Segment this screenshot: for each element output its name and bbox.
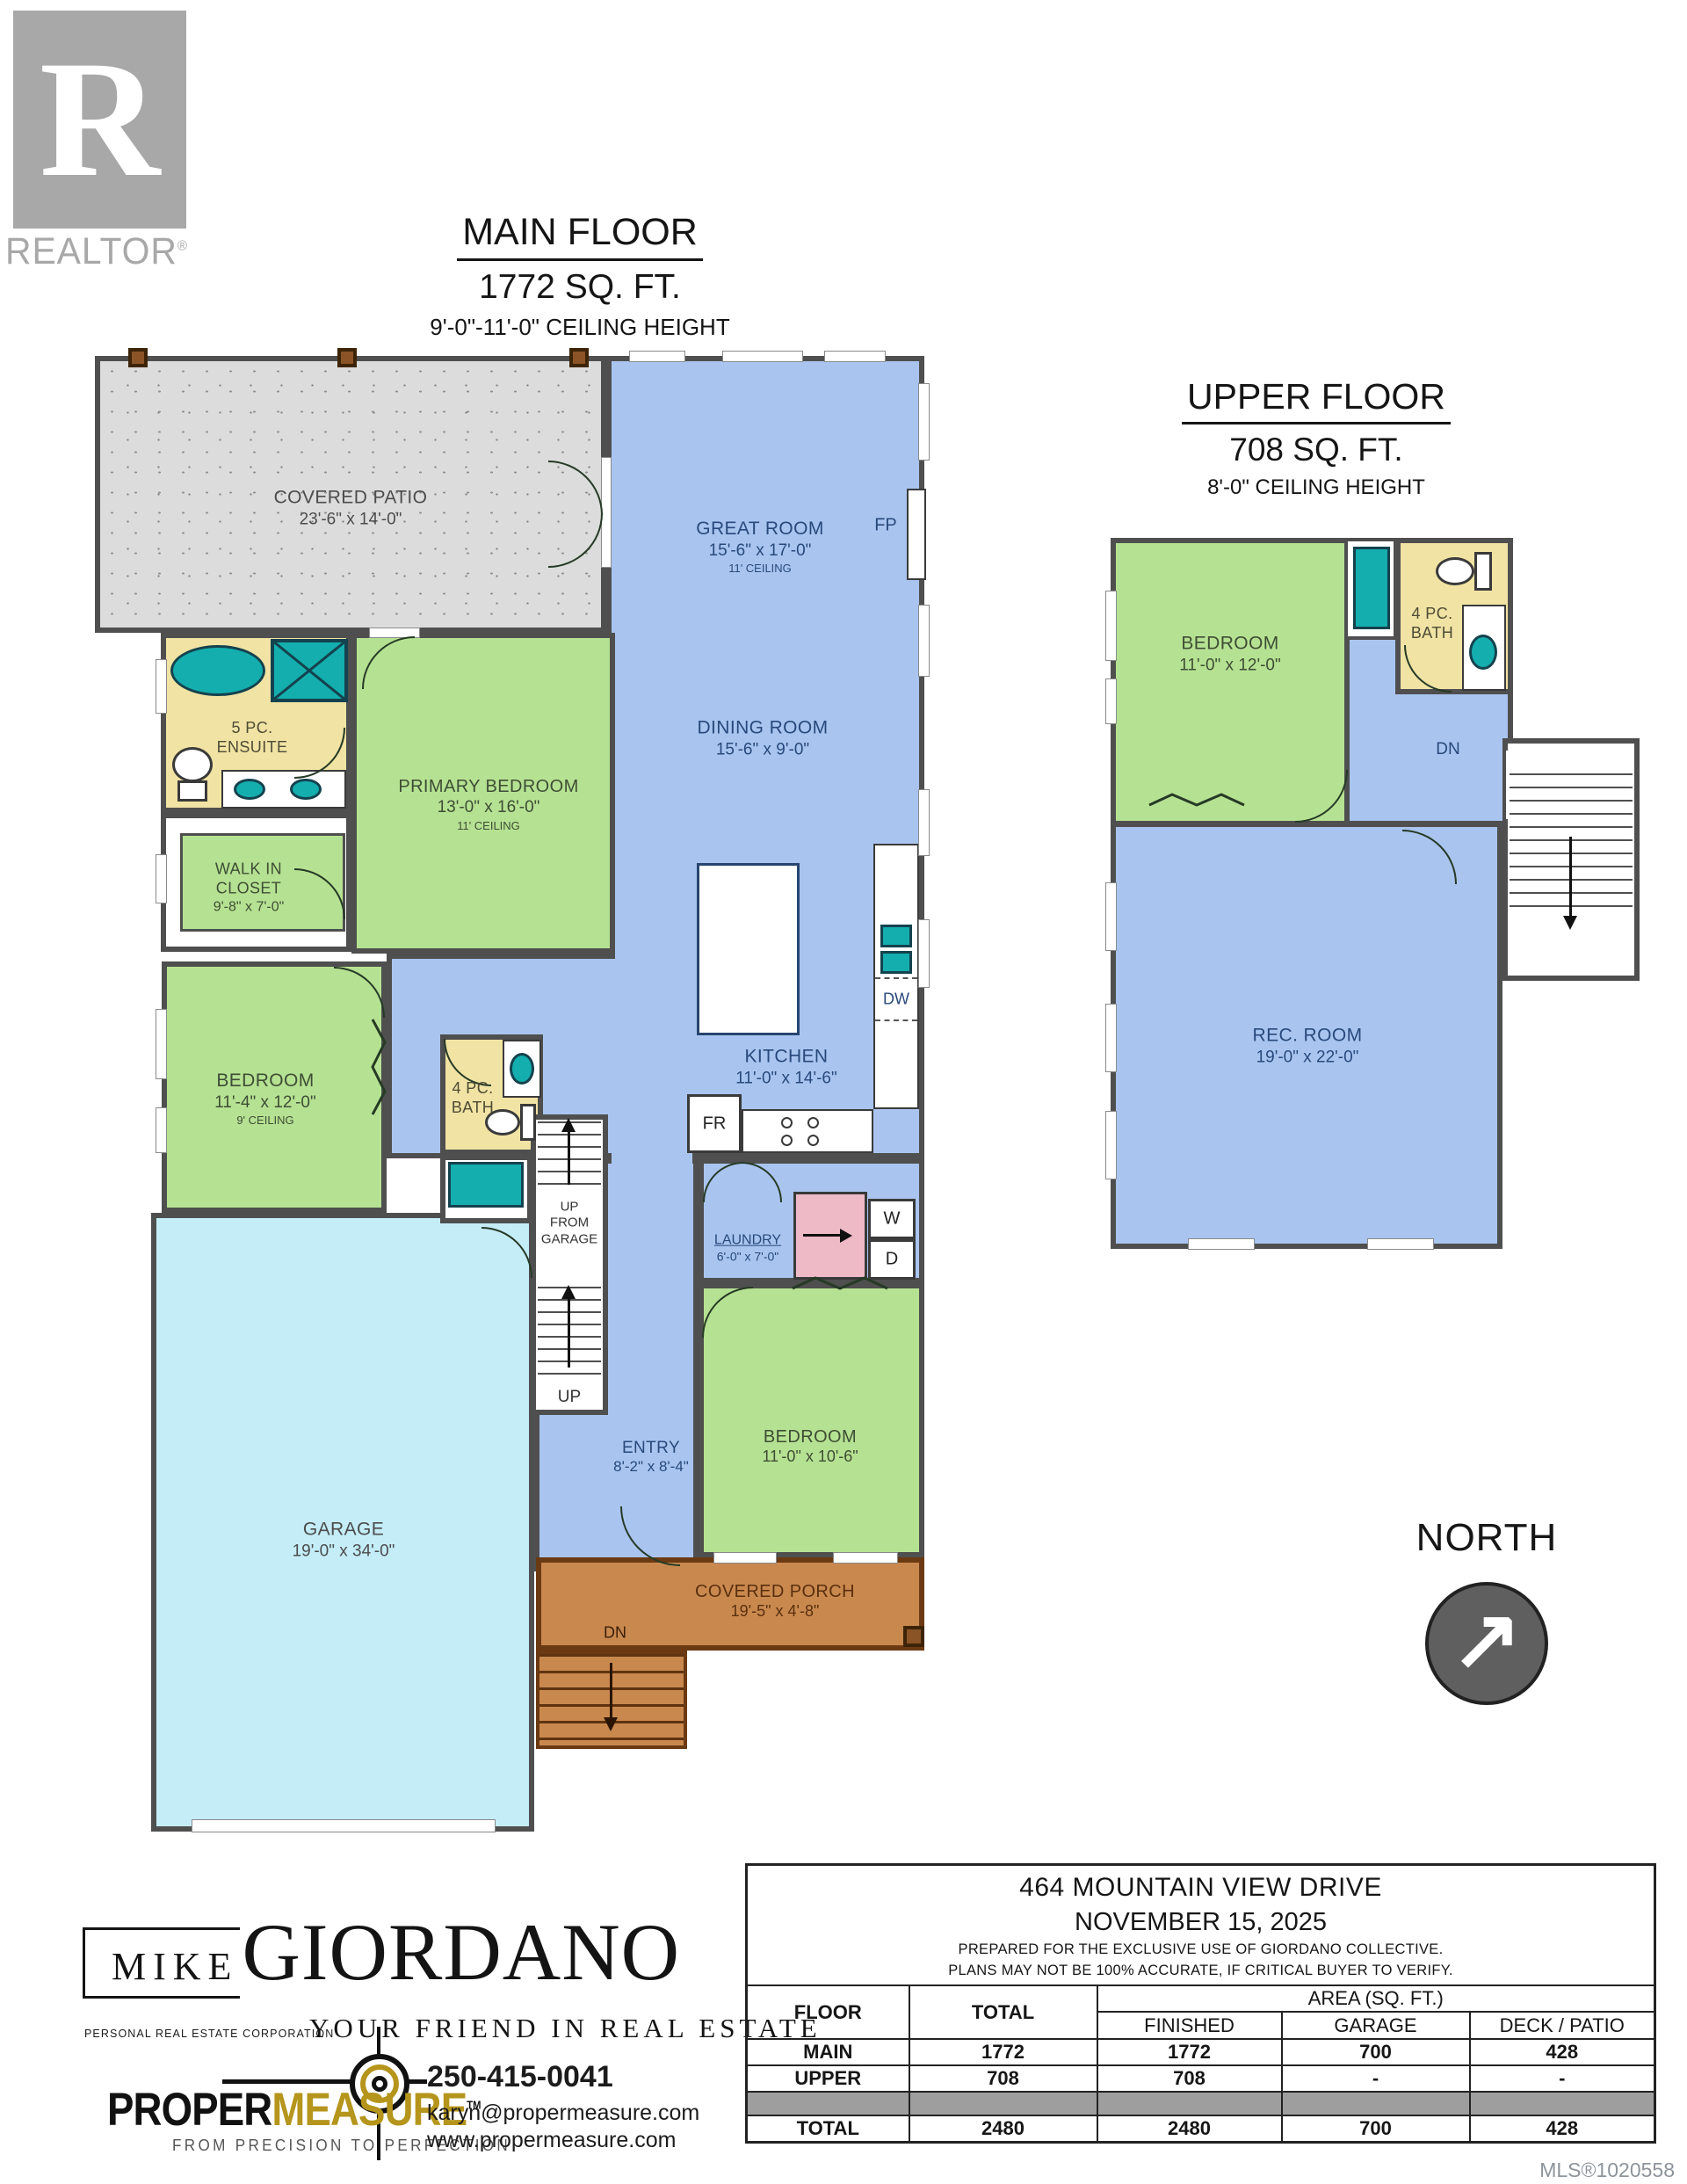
main-floor-area: 1772 SQ. FT.	[347, 268, 813, 307]
label-walk-in-closet: WALK IN CLOSET 9'-8" x 7'-0"	[214, 860, 285, 915]
window	[824, 351, 886, 362]
dw-divider	[875, 1019, 917, 1021]
stair-arrow	[568, 1294, 570, 1368]
window	[918, 919, 930, 988]
plan-date: NOVEMBER 15, 2025	[751, 1908, 1650, 1937]
laundry-arrow	[803, 1234, 842, 1237]
mike-frame: MIKE	[83, 1927, 240, 1999]
stove-burner	[807, 1135, 819, 1146]
upper-shower	[1353, 547, 1390, 629]
label-covered-patio: COVERED PATIO 23'-6" x 14'-0"	[274, 487, 428, 530]
patio-post	[569, 348, 589, 367]
mls-number: MLS®1020558	[1485, 2159, 1675, 2182]
north-compass-icon: ↗	[1425, 1582, 1548, 1705]
laundry-arrow-head	[840, 1229, 852, 1243]
ensuite-toilet	[172, 747, 213, 782]
upper-toilet	[1436, 557, 1474, 585]
propermeasure-phone: 250-415-0041	[427, 2060, 613, 2094]
ensuite-toilet-tank	[177, 780, 207, 802]
window	[1105, 1111, 1117, 1179]
table-row-upper: UPPER 708 708 - -	[747, 2065, 1655, 2092]
north-label: NORTH	[1416, 1516, 1558, 1560]
col-header-deck: DECK / PATIO	[1470, 2012, 1655, 2039]
registered-mark: ®	[177, 239, 188, 254]
stair-arrow-head	[561, 1118, 576, 1132]
table-note-2: PLANS MAY NOT BE 100% ACCURATE, IF CRITI…	[751, 1963, 1650, 1979]
window	[722, 351, 803, 362]
upper-floor-title: UPPER FLOOR	[1182, 376, 1451, 424]
stair-arrow-head	[561, 1285, 576, 1299]
bath-toilet-tank	[520, 1104, 536, 1141]
window	[156, 659, 167, 714]
ensuite-sink	[234, 779, 265, 800]
propermeasure-wordmark: PROPERMEASURETM	[107, 2083, 481, 2137]
main-floor-title: MAIN FLOOR	[457, 211, 703, 261]
stair-arrow	[568, 1127, 570, 1185]
giordano-subtitle: PERSONAL REAL ESTATE CORPORATION	[84, 2028, 334, 2040]
window	[156, 1107, 167, 1153]
window	[1105, 1004, 1117, 1072]
north-arrow-icon: ↗	[1452, 1598, 1522, 1682]
table-spacer-row	[747, 2092, 1655, 2115]
table-row-total: TOTAL 2480 2480 700 428	[747, 2115, 1655, 2143]
window	[918, 789, 930, 856]
propermeasure-email: karyn@propermeasure.com	[427, 2101, 699, 2126]
label-bedroom3: BEDROOM 11'-0" x 10'-6"	[762, 1426, 858, 1467]
window	[1105, 591, 1117, 661]
giordano-logo: MIKEGIORDANO	[83, 1918, 680, 1999]
realtor-wordmark: REALTOR®	[5, 230, 187, 273]
realtor-logo-icon: R	[13, 11, 186, 229]
label-covered-porch: COVERED PORCH 19'-5" x 4'-8"	[695, 1581, 855, 1622]
table-header-block: 464 MOUNTAIN VIEW DRIVE NOVEMBER 15, 202…	[747, 1865, 1655, 1986]
kitchen-counter	[873, 844, 919, 1109]
patio-post	[128, 348, 148, 367]
kitchen-counter-stove	[742, 1109, 873, 1153]
stove-burner	[781, 1135, 793, 1146]
ensuite-shower	[271, 639, 348, 702]
kitchen-sink	[880, 925, 912, 947]
porch-stair-arrow-head	[604, 1717, 618, 1731]
propermeasure-website: www.propermeasure.com	[427, 2128, 676, 2153]
label-washer: W	[884, 1209, 901, 1230]
label-garage: GARAGE 19'-0" x 34'-0"	[293, 1519, 395, 1562]
main-floor-ceiling: 9'-0"-11'-0" CEILING HEIGHT	[347, 314, 813, 341]
label-dining-room: DINING ROOM 15'-6" x 9'-0"	[697, 717, 828, 760]
property-address: 464 MOUNTAIN VIEW DRIVE	[751, 1873, 1650, 1903]
window	[1188, 1238, 1255, 1250]
window	[1105, 882, 1117, 951]
col-header-floor: FLOOR	[747, 1985, 909, 2039]
label-rec-room: REC. ROOM 19'-0" x 22'-0"	[1253, 1025, 1363, 1068]
label-upper-bath: 4 PC. BATH	[1411, 605, 1453, 643]
table-row-main: MAIN 1772 1772 700 428	[747, 2039, 1655, 2065]
kitchen-sink	[880, 951, 912, 974]
window	[918, 383, 930, 461]
mike-text: MIKE	[112, 1945, 238, 1988]
table-note-1: PREPARED FOR THE EXCLUSIVE USE OF GIORDA…	[751, 1941, 1650, 1958]
upper-floor-area: 708 SQ. FT.	[1097, 432, 1536, 468]
label-up: UP	[558, 1388, 581, 1407]
label-primary-bedroom: PRIMARY BEDROOM 13'-0" x 16'-0" 11' CEIL…	[398, 776, 578, 832]
window	[918, 605, 930, 677]
giordano-text: GIORDANO	[242, 1907, 680, 1997]
label-dishwasher: DW	[883, 990, 909, 1009]
col-header-total: TOTAL	[909, 1985, 1097, 2039]
window	[833, 1552, 898, 1564]
stove-burner	[781, 1117, 793, 1128]
ensuite-sink	[290, 779, 322, 800]
label-upper-bedroom: BEDROOM 11'-0" x 12'-0"	[1179, 633, 1280, 676]
window	[156, 854, 167, 903]
dw-divider	[875, 977, 917, 979]
bifold-door-icon	[371, 1018, 387, 1116]
porch-stair-arrow	[610, 1663, 612, 1721]
bathtub	[448, 1162, 524, 1208]
upper-sink	[1469, 635, 1497, 670]
patio-post	[337, 348, 357, 367]
upper-floor-ceiling: 8'-0" CEILING HEIGHT	[1097, 475, 1536, 500]
label-entry: ENTRY 8'-2" x 8'-4"	[613, 1438, 689, 1477]
upper-floor-title-block: UPPER FLOOR 708 SQ. FT. 8'-0" CEILING HE…	[1097, 376, 1536, 500]
bath-sink	[510, 1053, 534, 1085]
label-fridge: FR	[703, 1114, 727, 1135]
stove-burner	[807, 1117, 819, 1128]
window	[1367, 1238, 1434, 1250]
floor-plan-page: { "branding": { "realtor": {"letter": "R…	[0, 0, 1687, 2184]
label-dryer: D	[886, 1250, 898, 1270]
window	[1105, 678, 1117, 724]
kitchen-island	[697, 863, 800, 1035]
label-fireplace: FP	[874, 516, 897, 536]
garage-door-opening	[192, 1819, 496, 1832]
ensuite-tub	[170, 645, 265, 696]
label-bedroom2: BEDROOM 11'-4" x 12'-0" 9' CEILING	[214, 1070, 315, 1128]
bifold-door-icon	[1148, 793, 1246, 809]
fireplace	[907, 489, 926, 580]
col-header-garage: GARAGE	[1282, 2012, 1470, 2039]
realtor-r-letter: R	[40, 36, 160, 203]
upper-toilet-tank	[1474, 552, 1492, 591]
label-kitchen: KITCHEN 11'-0" x 14'-6"	[735, 1046, 836, 1089]
open-wall-patch	[612, 1151, 692, 1167]
bifold-door-icon	[791, 1276, 889, 1292]
stair-arrow-head	[1563, 916, 1577, 930]
label-great-room: GREAT ROOM 15'-6" x 17'-0" 11' CEILING	[696, 518, 824, 576]
label-up-from-garage: UP FROM GARAGE	[541, 1200, 597, 1248]
col-header-area: AREA (SQ. FT.)	[1097, 1985, 1655, 2012]
porch-post	[903, 1626, 924, 1647]
label-dn-upper: DN	[1436, 740, 1459, 759]
label-laundry: LAUNDRY 6'-0" x 7'-0"	[714, 1232, 781, 1265]
main-floor-title-block: MAIN FLOOR 1772 SQ. FT. 9'-0"-11'-0" CEI…	[347, 211, 813, 341]
window	[629, 351, 685, 362]
label-dn-porch: DN	[604, 1624, 626, 1643]
window	[713, 1552, 777, 1564]
label-ensuite: 5 PC. ENSUITE	[217, 719, 288, 758]
window	[156, 1009, 167, 1079]
label-bath-main: 4 PC. BATH	[452, 1079, 494, 1118]
summary-table: 464 MOUNTAIN VIEW DRIVE NOVEMBER 15, 202…	[745, 1863, 1656, 2144]
stair-arrow	[1569, 837, 1572, 921]
col-header-finished: FINISHED	[1097, 2012, 1282, 2039]
